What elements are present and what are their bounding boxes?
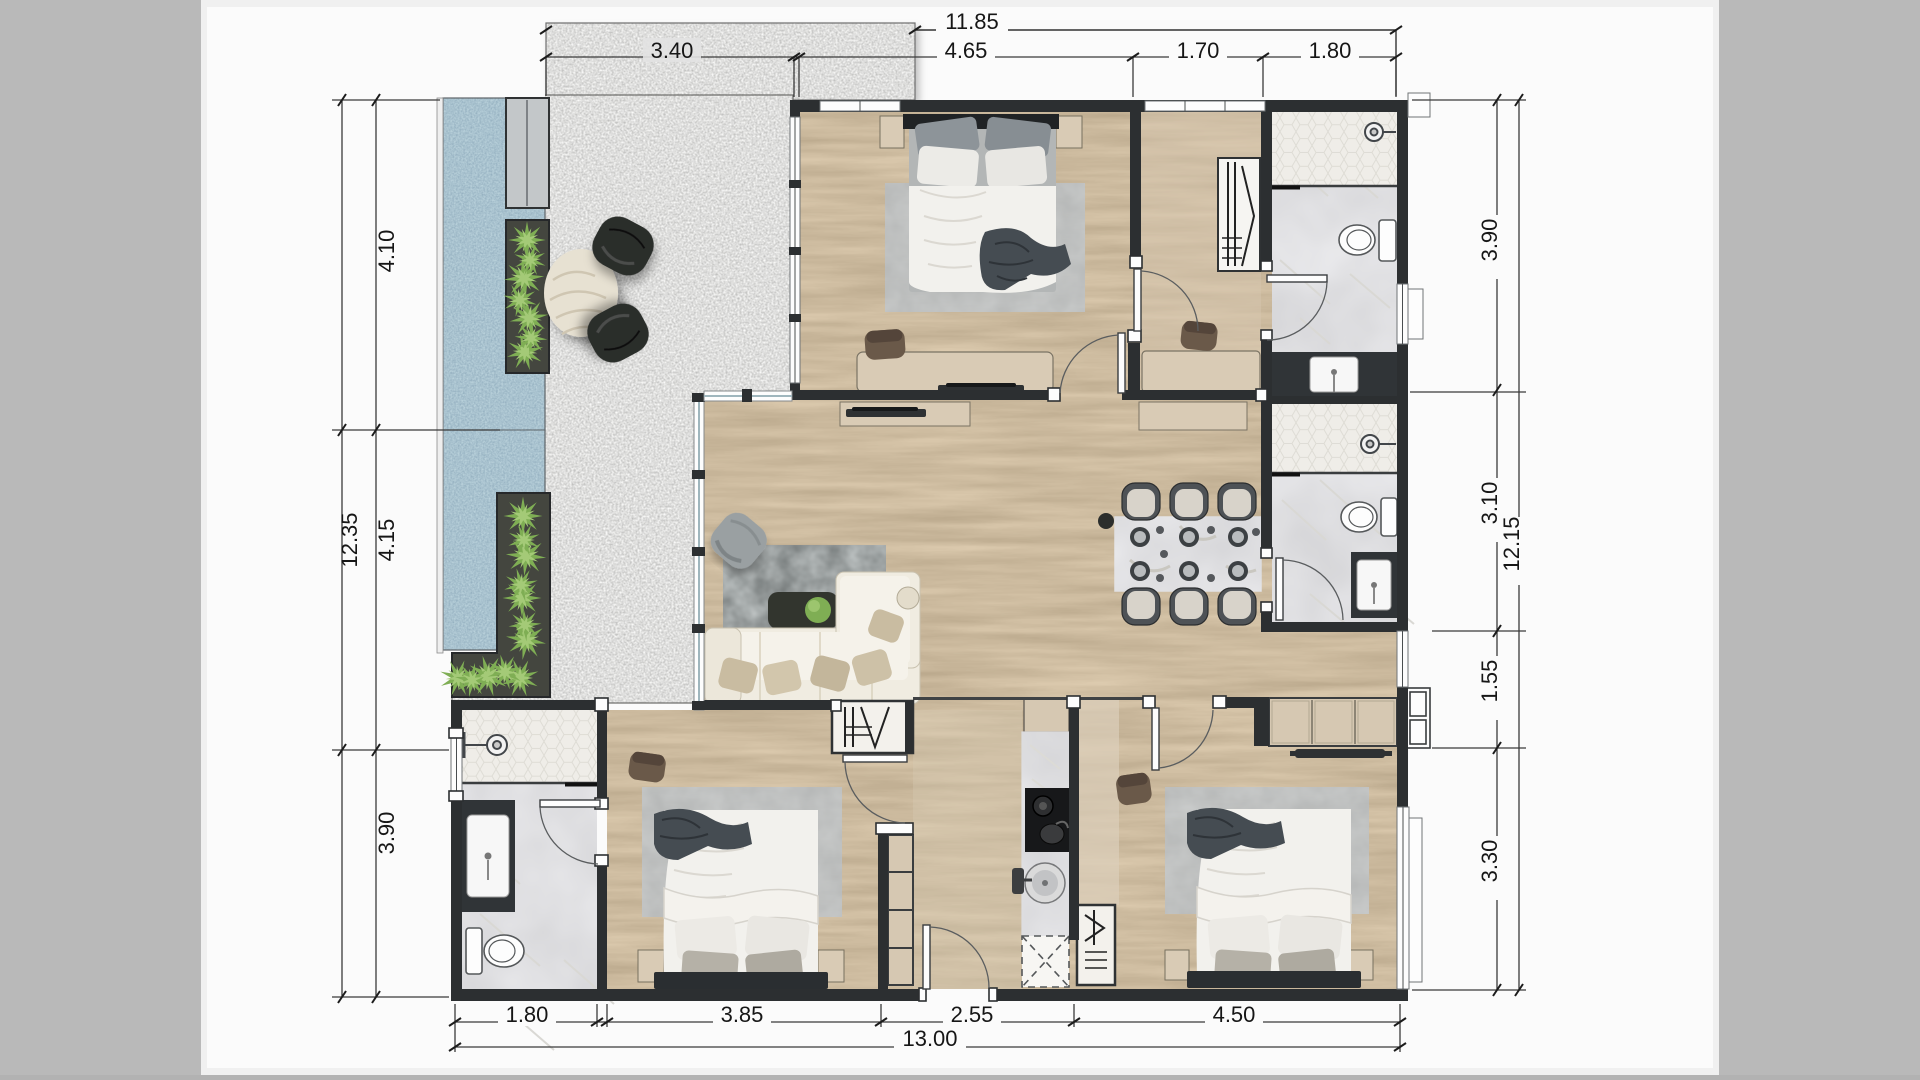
svg-text:11.85: 11.85 xyxy=(945,9,998,34)
svg-text:1.80: 1.80 xyxy=(1309,38,1352,63)
svg-text:1.70: 1.70 xyxy=(1177,38,1220,63)
svg-text:1.55: 1.55 xyxy=(1477,660,1502,703)
svg-text:4.10: 4.10 xyxy=(374,230,399,273)
svg-text:3.90: 3.90 xyxy=(1477,219,1502,262)
svg-text:12.15: 12.15 xyxy=(1499,516,1524,571)
svg-text:12.35: 12.35 xyxy=(337,512,362,567)
svg-text:4.65: 4.65 xyxy=(945,38,988,63)
svg-text:1.80: 1.80 xyxy=(506,1002,549,1027)
svg-text:3.85: 3.85 xyxy=(721,1002,764,1027)
svg-text:4.50: 4.50 xyxy=(1213,1002,1256,1027)
svg-text:4.15: 4.15 xyxy=(374,519,399,562)
svg-text:2.55: 2.55 xyxy=(951,1002,994,1027)
svg-text:13.00: 13.00 xyxy=(902,1026,957,1051)
svg-text:3.30: 3.30 xyxy=(1477,840,1502,883)
svg-text:3.40: 3.40 xyxy=(651,38,694,63)
svg-text:3.90: 3.90 xyxy=(374,812,399,855)
